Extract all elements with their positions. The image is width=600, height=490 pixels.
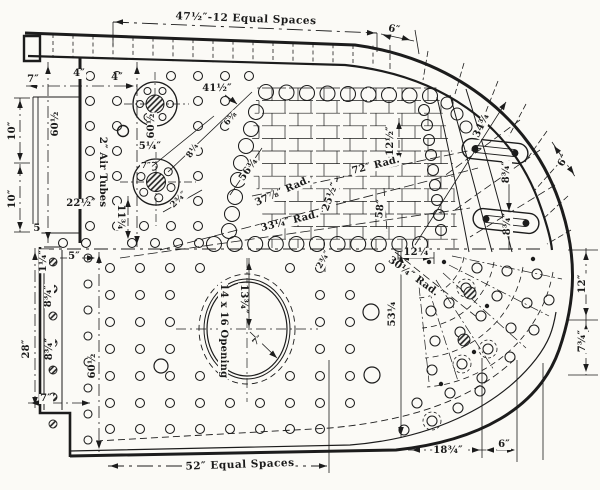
dim-7-3-4-right: 7¾″	[578, 329, 588, 353]
dim-8-3-4-a: 8¾″	[502, 160, 512, 184]
corner-fan-layout	[419, 256, 562, 387]
dim-12-quarter: 12¼	[403, 248, 430, 258]
dim-10-b: 10″	[8, 189, 18, 210]
dim-22-half: 22½″	[65, 199, 97, 209]
label-air-tubes: 2″ Air Tubes	[97, 136, 107, 208]
dim-8-3-4-d: 8¾″	[45, 337, 55, 361]
dim-4-a: 4″	[72, 69, 86, 79]
dim-41-half: 41½″	[201, 84, 233, 94]
dim-18-3-4: 18¾″	[432, 446, 464, 456]
dim-6-bottom: 6″	[497, 440, 511, 450]
dim-53-quarter: 53¼	[388, 301, 398, 328]
drawing-linework	[0, 0, 600, 490]
dim-4-b: 4″	[110, 73, 124, 83]
engineering-drawing-canvas: 47½″-12 Equal Spaces 6″ 7″ 4″ 4″ 41½″ 6⅝…	[0, 0, 600, 490]
dim-28: 28″	[22, 339, 32, 360]
dim-5-b: 5″	[67, 252, 81, 262]
dim-11-3-4: 11¾	[115, 204, 125, 231]
dim-5-a: 5	[32, 224, 41, 234]
dim-8-3-4-b: 8¾″	[503, 212, 513, 236]
dim-60-half-b: 60½	[147, 113, 157, 140]
dim-12-right: 12″	[578, 274, 588, 295]
dim-7-bottom: 7″	[39, 394, 53, 404]
label-opening: 14 x 16 Opening	[218, 283, 228, 380]
dim-8-3-4-c: 8¾″	[44, 284, 54, 308]
dim-60-half-c: 60½	[88, 353, 98, 380]
dim-1-quarter: 1¼″	[39, 249, 49, 273]
dim-12-half: 12½″	[386, 125, 396, 157]
dim-13-3-4: 13¾″	[238, 283, 248, 315]
dim-top-6: 6″	[386, 24, 401, 36]
dim-7-flange: 7″	[140, 162, 152, 171]
dim-7-top: 7″	[26, 75, 40, 85]
dim-5-quarter: 5¼″	[138, 142, 162, 152]
dim-60-half-a: 60½	[51, 111, 61, 138]
dim-10-a: 10″	[8, 121, 18, 142]
staybolt-brick-pattern	[235, 88, 465, 264]
